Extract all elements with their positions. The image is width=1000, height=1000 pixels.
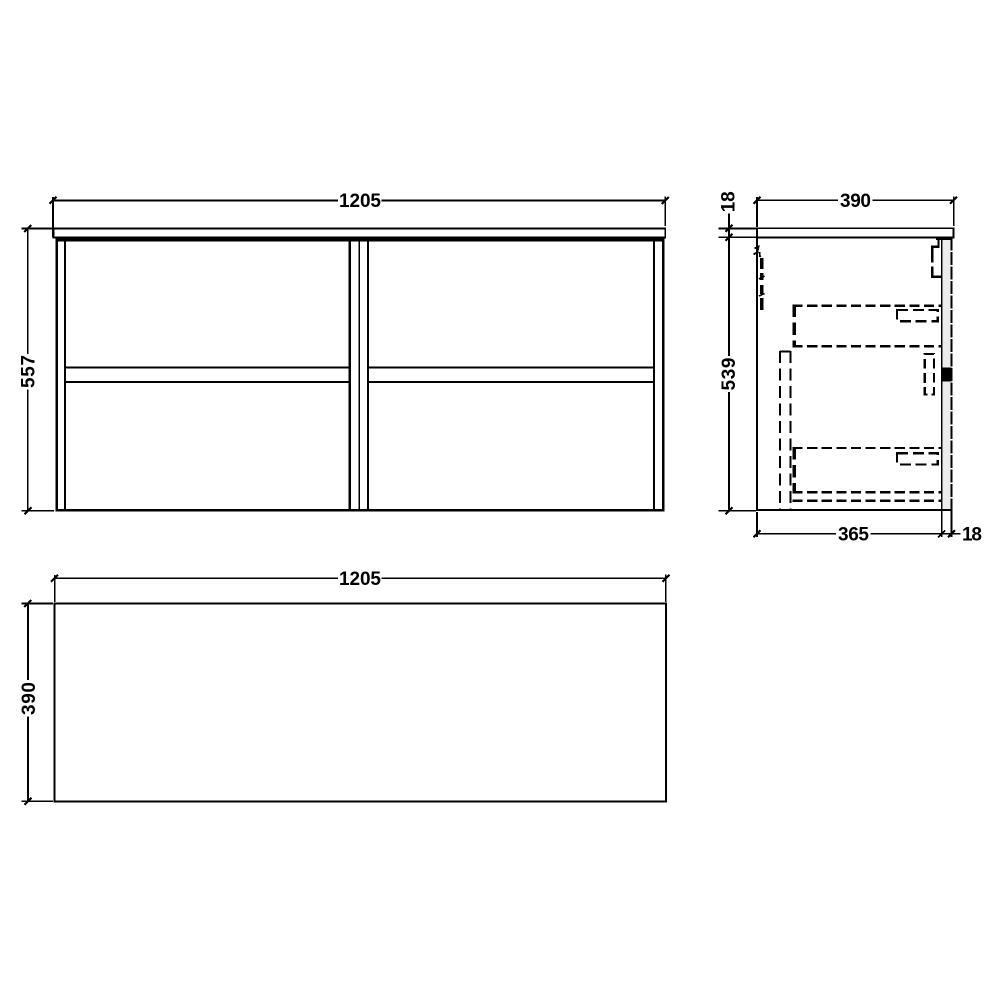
svg-text:1205: 1205 (339, 569, 381, 590)
svg-text:1205: 1205 (339, 191, 381, 212)
svg-text:557: 557 (19, 355, 40, 388)
svg-text:390: 390 (19, 682, 40, 715)
svg-text:18: 18 (719, 191, 740, 212)
svg-text:539: 539 (719, 358, 740, 391)
svg-text:390: 390 (840, 191, 871, 212)
svg-text:365: 365 (838, 524, 869, 545)
svg-text:18: 18 (962, 524, 982, 545)
